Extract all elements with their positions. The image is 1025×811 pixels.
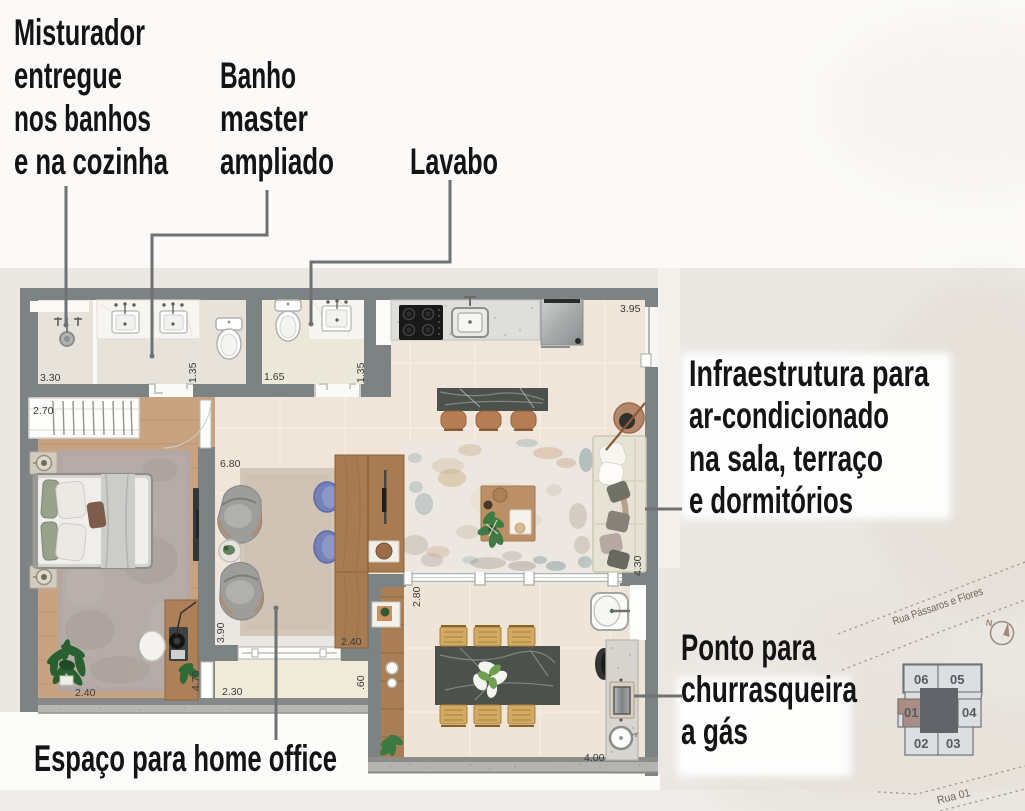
svg-text:2.80: 2.80 (411, 586, 423, 607)
svg-text:4.00: 4.00 (584, 752, 605, 764)
svg-text:N: N (985, 617, 993, 628)
svg-text:4.30: 4.30 (632, 555, 644, 576)
svg-text:03: 03 (946, 736, 960, 751)
svg-text:01: 01 (904, 705, 918, 720)
svg-text:ampliado: ampliado (220, 141, 334, 182)
svg-text:3.90: 3.90 (215, 622, 227, 643)
svg-text:churrasqueira: churrasqueira (681, 669, 857, 710)
svg-text:3.95: 3.95 (620, 303, 641, 315)
svg-text:02: 02 (914, 736, 928, 751)
svg-text:Lavabo: Lavabo (410, 141, 498, 182)
svg-text:.60: .60 (355, 675, 367, 690)
svg-text:4.75: 4.75 (190, 670, 202, 691)
svg-text:05: 05 (950, 672, 964, 687)
svg-text:e dormitórios: e dormitórios (689, 480, 853, 521)
svg-text:nos banhos: nos banhos (14, 98, 151, 139)
svg-text:2.40: 2.40 (341, 636, 362, 648)
svg-text:06: 06 (914, 672, 928, 687)
svg-text:3.30: 3.30 (40, 372, 61, 384)
svg-text:1.65: 1.65 (264, 371, 285, 383)
svg-text:master: master (220, 98, 308, 139)
svg-text:6.80: 6.80 (220, 458, 241, 470)
svg-text:Misturador: Misturador (14, 12, 145, 53)
svg-text:Ponto para: Ponto para (681, 627, 816, 668)
svg-text:ar-condicionado: ar-condicionado (689, 395, 889, 436)
svg-text:1.35: 1.35 (355, 362, 367, 383)
svg-text:Banho: Banho (220, 55, 296, 96)
svg-text:04: 04 (962, 705, 977, 720)
svg-text:e na cozinha: e na cozinha (14, 141, 168, 182)
svg-text:1.35: 1.35 (187, 362, 199, 383)
svg-text:2.70: 2.70 (33, 405, 54, 417)
svg-text:Infraestrutura para: Infraestrutura para (689, 353, 929, 394)
svg-text:2.40: 2.40 (75, 687, 96, 699)
svg-text:entregue: entregue (14, 55, 122, 96)
svg-text:2.30: 2.30 (222, 686, 243, 698)
svg-text:na sala, terraço: na sala, terraço (689, 438, 883, 479)
svg-text:a gás: a gás (681, 711, 748, 752)
svg-text:Espaço para home office: Espaço para home office (34, 738, 337, 779)
